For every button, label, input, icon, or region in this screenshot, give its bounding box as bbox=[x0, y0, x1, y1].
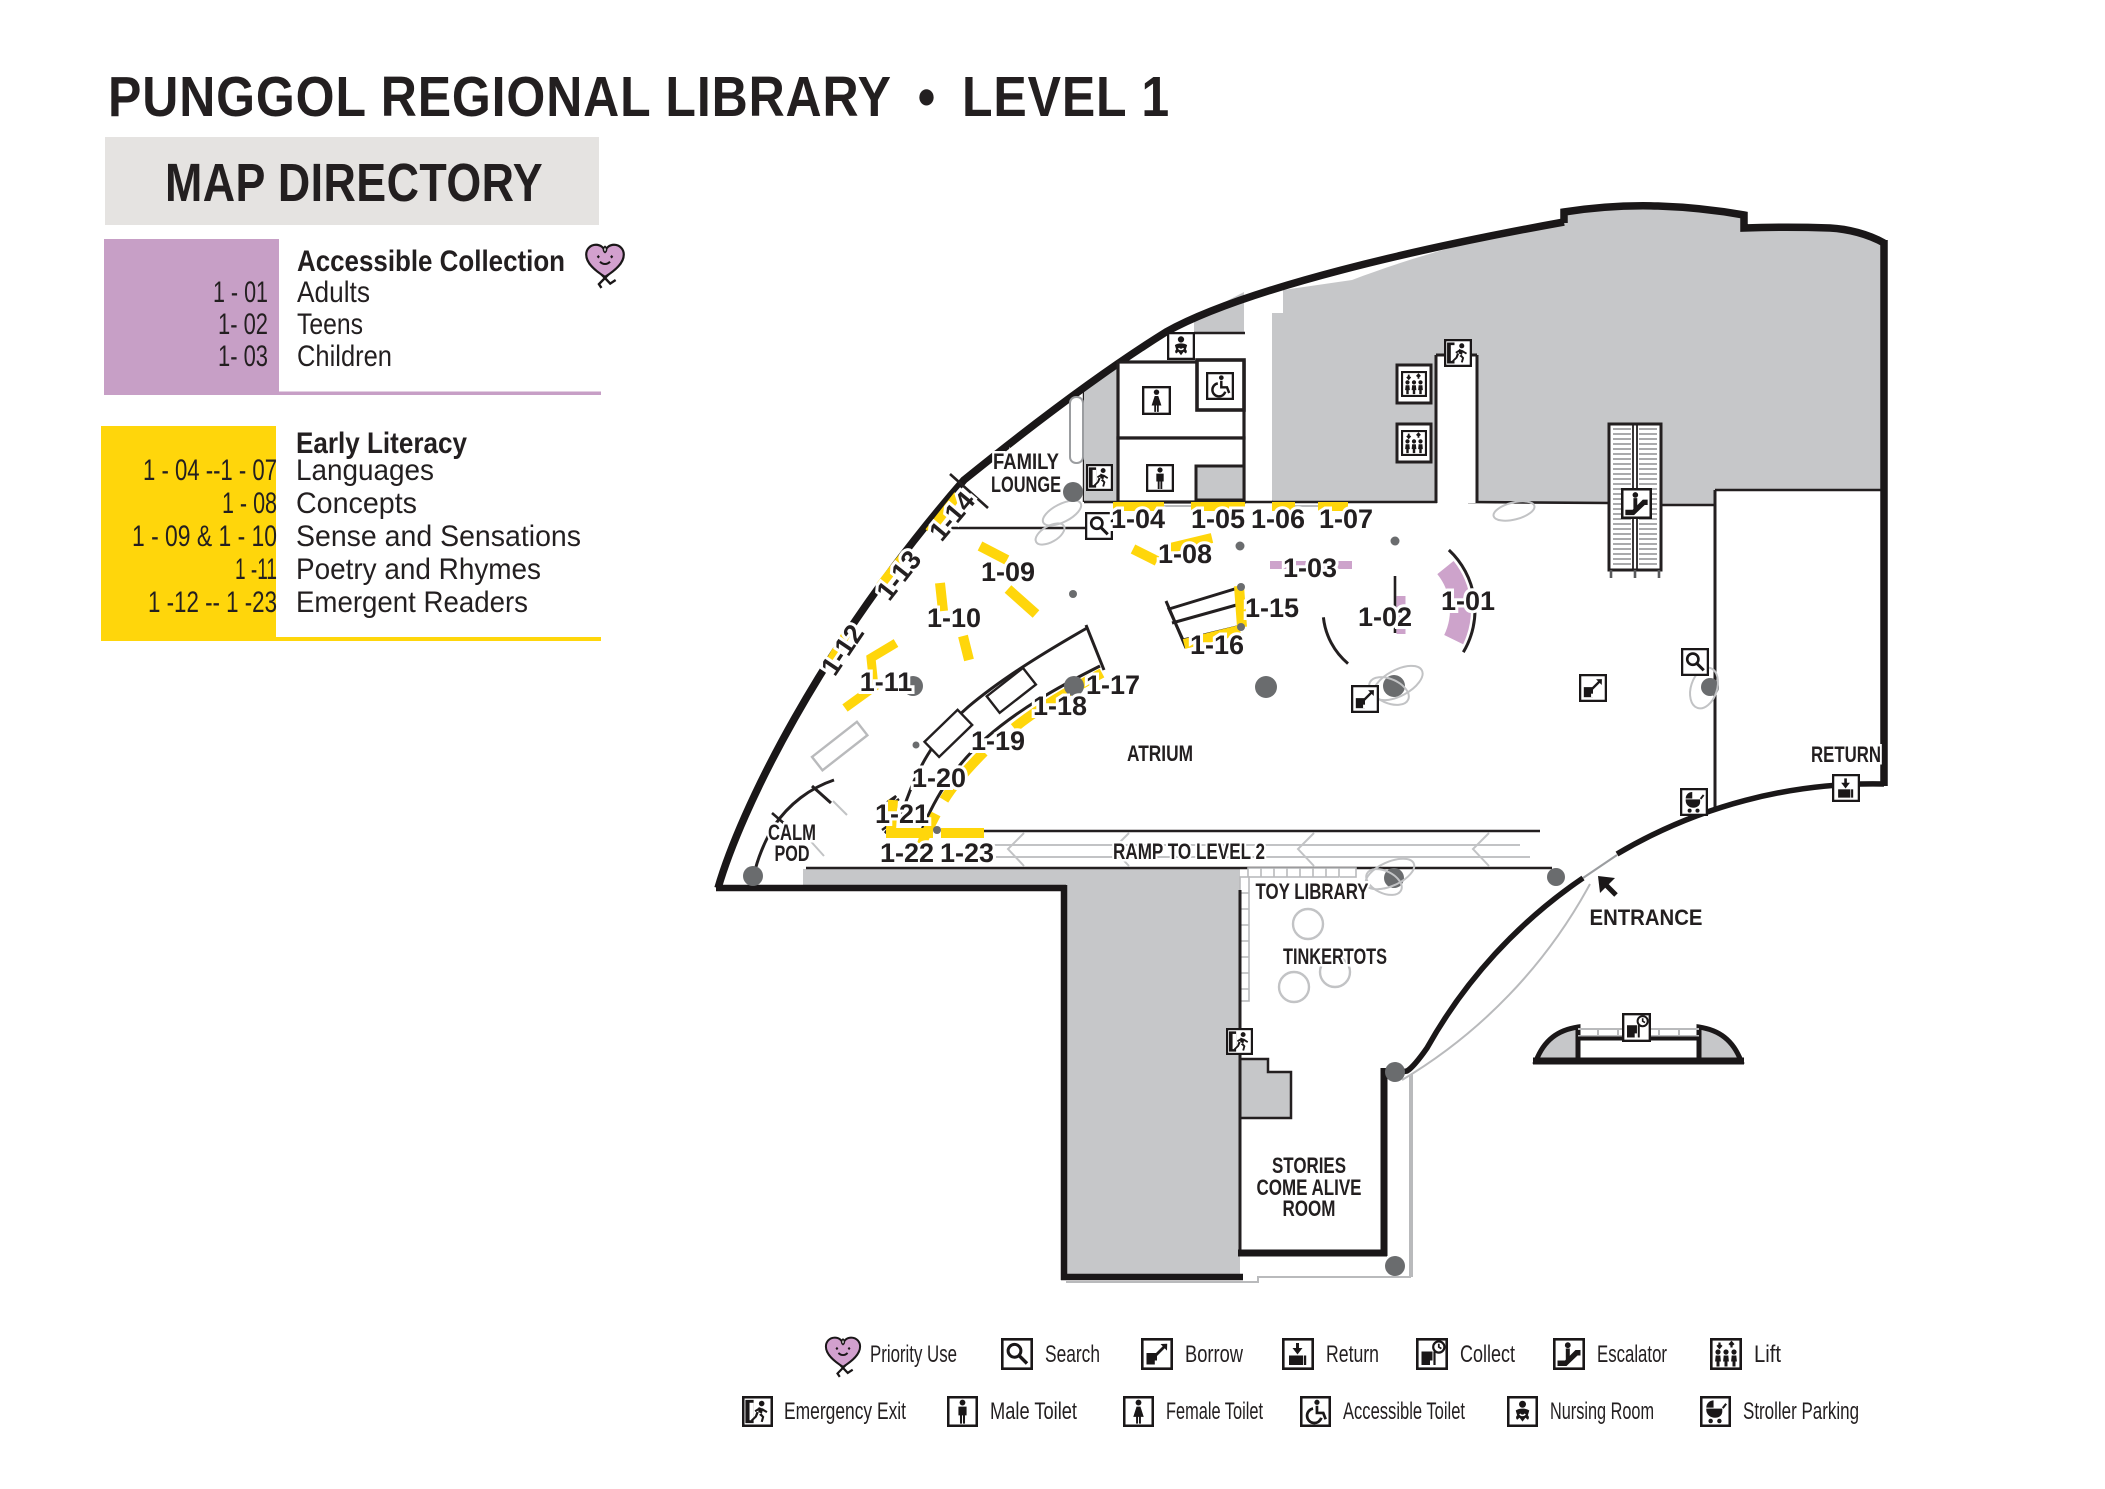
svg-text:Emergent Readers: Emergent Readers bbox=[296, 586, 528, 619]
svg-text:Children: Children bbox=[297, 340, 392, 373]
svg-text:1-23: 1-23 bbox=[940, 838, 994, 868]
svg-text:Nursing Room: Nursing Room bbox=[1550, 1398, 1654, 1425]
svg-text:Sense and Sensations: Sense and Sensations bbox=[296, 520, 581, 553]
svg-text:1 - 01: 1 - 01 bbox=[213, 276, 268, 309]
svg-text:FAMILY: FAMILY bbox=[993, 449, 1059, 474]
svg-text:Escalator: Escalator bbox=[1597, 1341, 1667, 1368]
svg-text:1-21: 1-21 bbox=[875, 799, 929, 829]
svg-text:RETURN: RETURN bbox=[1811, 742, 1881, 767]
svg-text:1-22: 1-22 bbox=[880, 838, 934, 868]
svg-text:1-03: 1-03 bbox=[1283, 553, 1337, 583]
svg-text:Female Toilet: Female Toilet bbox=[1166, 1398, 1263, 1425]
svg-text:Emergency Exit: Emergency Exit bbox=[784, 1398, 906, 1425]
svg-text:Collect: Collect bbox=[1460, 1341, 1515, 1368]
svg-text:1-02: 1-02 bbox=[1358, 602, 1412, 632]
svg-text:1-19: 1-19 bbox=[971, 726, 1025, 756]
svg-text:Stroller Parking: Stroller Parking bbox=[1743, 1398, 1859, 1425]
svg-text:ROOM: ROOM bbox=[1283, 1196, 1336, 1221]
svg-text:1-16: 1-16 bbox=[1190, 630, 1244, 660]
svg-text:Male Toilet: Male Toilet bbox=[990, 1398, 1077, 1425]
svg-text:Search: Search bbox=[1045, 1341, 1100, 1368]
svg-text:Languages: Languages bbox=[296, 454, 434, 487]
svg-text:POD: POD bbox=[775, 841, 810, 866]
svg-text:PUNGGOL REGIONAL LIBRARY • LEV: PUNGGOL REGIONAL LIBRARY • LEVEL 1 bbox=[108, 65, 1170, 129]
svg-text:MAP DIRECTORY: MAP DIRECTORY bbox=[165, 153, 543, 213]
svg-text:1-01: 1-01 bbox=[1441, 586, 1495, 616]
svg-text:Accessible Toilet: Accessible Toilet bbox=[1343, 1398, 1465, 1425]
svg-text:1 - 09 & 1 - 10: 1 - 09 & 1 - 10 bbox=[132, 520, 277, 553]
svg-text:1 -11: 1 -11 bbox=[235, 553, 277, 586]
svg-text:1-08: 1-08 bbox=[1158, 539, 1212, 569]
svg-text:LOUNGE: LOUNGE bbox=[991, 472, 1061, 497]
svg-text:1-15: 1-15 bbox=[1245, 593, 1299, 623]
svg-text:1-20: 1-20 bbox=[912, 763, 966, 793]
svg-text:1-13: 1-13 bbox=[870, 545, 927, 606]
svg-text:1- 03: 1- 03 bbox=[218, 340, 268, 373]
svg-text:Teens: Teens bbox=[297, 308, 363, 341]
svg-text:1-07: 1-07 bbox=[1319, 504, 1373, 534]
svg-text:TINKERTOTS: TINKERTOTS bbox=[1283, 944, 1387, 969]
svg-text:Priority Use: Priority Use bbox=[870, 1341, 957, 1368]
svg-text:Accessible Collection: Accessible Collection bbox=[297, 245, 565, 278]
svg-text:Poetry and Rhymes: Poetry and Rhymes bbox=[296, 553, 541, 586]
svg-text:1-10: 1-10 bbox=[927, 603, 981, 633]
svg-text:Concepts: Concepts bbox=[296, 487, 417, 520]
svg-text:1 - 08: 1 - 08 bbox=[222, 487, 277, 520]
svg-text:1-06: 1-06 bbox=[1251, 504, 1305, 534]
svg-text:1 -12 -- 1 -23: 1 -12 -- 1 -23 bbox=[148, 586, 277, 619]
svg-text:1-05: 1-05 bbox=[1191, 504, 1245, 534]
svg-text:RAMP TO LEVEL 2: RAMP TO LEVEL 2 bbox=[1113, 839, 1265, 864]
svg-text:1 - 04 --1 - 07: 1 - 04 --1 - 07 bbox=[143, 454, 277, 487]
svg-text:Lift: Lift bbox=[1754, 1341, 1781, 1368]
svg-text:1-04: 1-04 bbox=[1111, 504, 1165, 534]
svg-text:1- 02: 1- 02 bbox=[218, 308, 268, 341]
svg-text:ENTRANCE: ENTRANCE bbox=[1590, 905, 1703, 930]
svg-text:1-18: 1-18 bbox=[1033, 691, 1087, 721]
svg-text:ATRIUM: ATRIUM bbox=[1127, 741, 1193, 766]
svg-text:1-09: 1-09 bbox=[981, 557, 1035, 587]
svg-text:TOY LIBRARY: TOY LIBRARY bbox=[1256, 879, 1369, 904]
svg-text:Adults: Adults bbox=[297, 276, 370, 309]
svg-text:1-17: 1-17 bbox=[1086, 670, 1140, 700]
svg-text:Borrow: Borrow bbox=[1185, 1341, 1244, 1368]
svg-text:Return: Return bbox=[1326, 1341, 1379, 1368]
svg-text:1-11: 1-11 bbox=[860, 667, 913, 697]
